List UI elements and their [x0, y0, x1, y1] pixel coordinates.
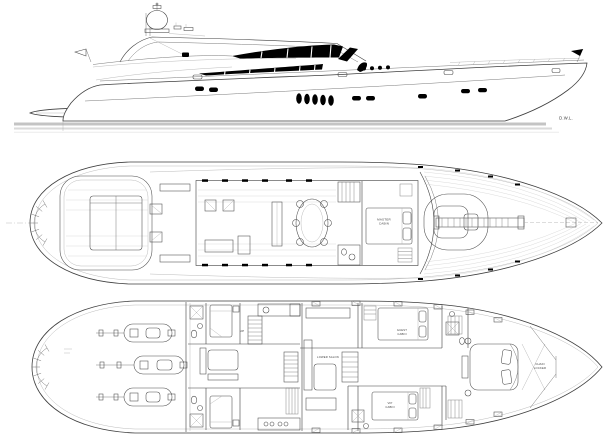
lower-deck-plan: UP [32, 301, 602, 433]
stern-flag [75, 49, 91, 62]
drawing-canvas: D.W.L. [0, 0, 611, 439]
glazing-black [199, 45, 367, 76]
label-vip-cabin-1: VIP [388, 401, 393, 405]
label-chain-locker-1: CHAIN [535, 362, 544, 366]
yacht-general-arrangement-drawing: D.W.L. [0, 0, 611, 439]
lower-deck-hull-outline [32, 301, 602, 433]
hull-profile [63, 58, 587, 121]
label-lower-salon: LOWER SALON [317, 355, 339, 359]
label-vip-cabin-2: CABIN [385, 405, 394, 409]
profile-view: D.W.L. [14, 3, 587, 133]
label-chain-locker-2: LOCKER [534, 366, 546, 370]
label-master-cabin-2: CABIN [379, 222, 389, 226]
waterline [14, 123, 559, 133]
label-guest-cabin-1: GUEST [397, 328, 407, 332]
main-deck-plan: MASTER CABIN [6, 162, 602, 284]
label-dwl: D.W.L. [559, 116, 573, 121]
radar-mast [145, 3, 205, 36]
label-up: UP [240, 329, 245, 333]
label-guest-cabin-2: CABIN [397, 332, 406, 336]
